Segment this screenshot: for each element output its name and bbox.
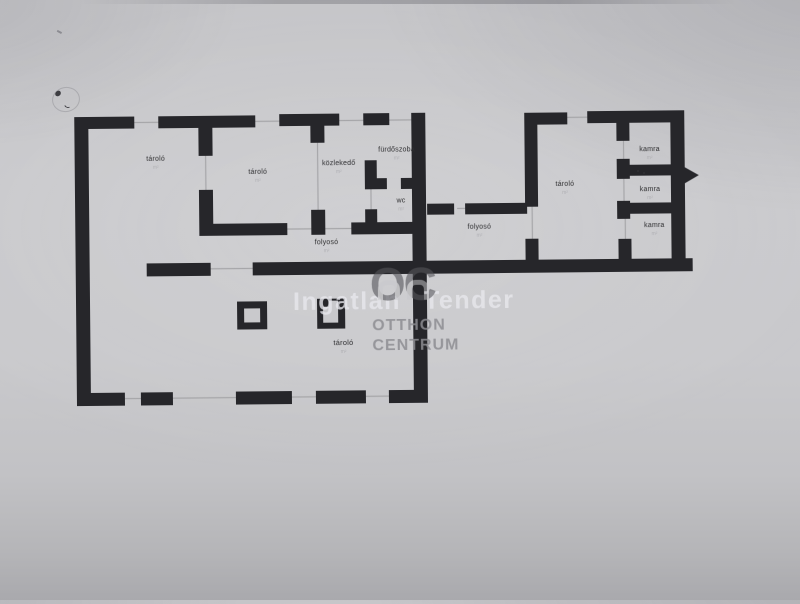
room-label-tarolo-top-left: tároló m²	[146, 156, 165, 171]
watermark-centrum-text: CENTRUM	[372, 336, 459, 355]
paper-speck	[637, 170, 639, 172]
room-label-kamra-bottom: kamra m²	[644, 222, 665, 237]
room-area-text: m²	[333, 349, 353, 355]
room-area-text: m²	[248, 178, 267, 184]
room-area-text: m²	[639, 155, 660, 161]
room-area-text: m²	[146, 165, 165, 171]
room-label-furdoszoba: fürdőszoba m²	[378, 146, 415, 161]
room-area-text: m²	[468, 233, 492, 239]
room-area-text: m²	[322, 169, 355, 175]
room-area-text: m²	[397, 206, 406, 212]
room-label-tarolo-right: tároló m²	[556, 181, 575, 196]
room-area-text: m²	[315, 248, 339, 254]
watermark-tender-text: Tender	[424, 286, 515, 316]
room-label-tarolo-bottom: tároló m²	[333, 338, 353, 355]
room-area-text: m²	[556, 190, 575, 196]
watermark-otthon-text: OTTHON	[372, 317, 446, 336]
scanned-floorplan-photo: { "document": { "kind": "floor plan sket…	[0, 0, 800, 600]
logo-arch-icon	[407, 280, 429, 300]
room-label-wc: wc m²	[397, 197, 406, 212]
room-area-text: m²	[644, 231, 665, 237]
room-area-text: m²	[378, 155, 415, 161]
logo-arch-icon	[378, 280, 400, 300]
room-label-kamra-top: kamra m²	[639, 146, 660, 161]
room-label-folyoso-left: folyosó m²	[315, 239, 339, 254]
room-label-tarolo-top-mid: tároló m²	[248, 169, 267, 184]
paper-speck	[643, 172, 645, 174]
otthon-centrum-logo: OC	[370, 256, 433, 313]
room-area-text: m²	[640, 195, 661, 201]
room-label-folyoso-right: folyosó m²	[467, 224, 491, 239]
door-marker-icon	[685, 167, 699, 183]
room-label-kozlekedo: közlekedő m²	[322, 160, 355, 175]
floor-plan: tároló m² tároló m² közlekedő m² fürdősz…	[0, 0, 800, 604]
room-label-kamra-middle: kamra m²	[640, 186, 661, 201]
